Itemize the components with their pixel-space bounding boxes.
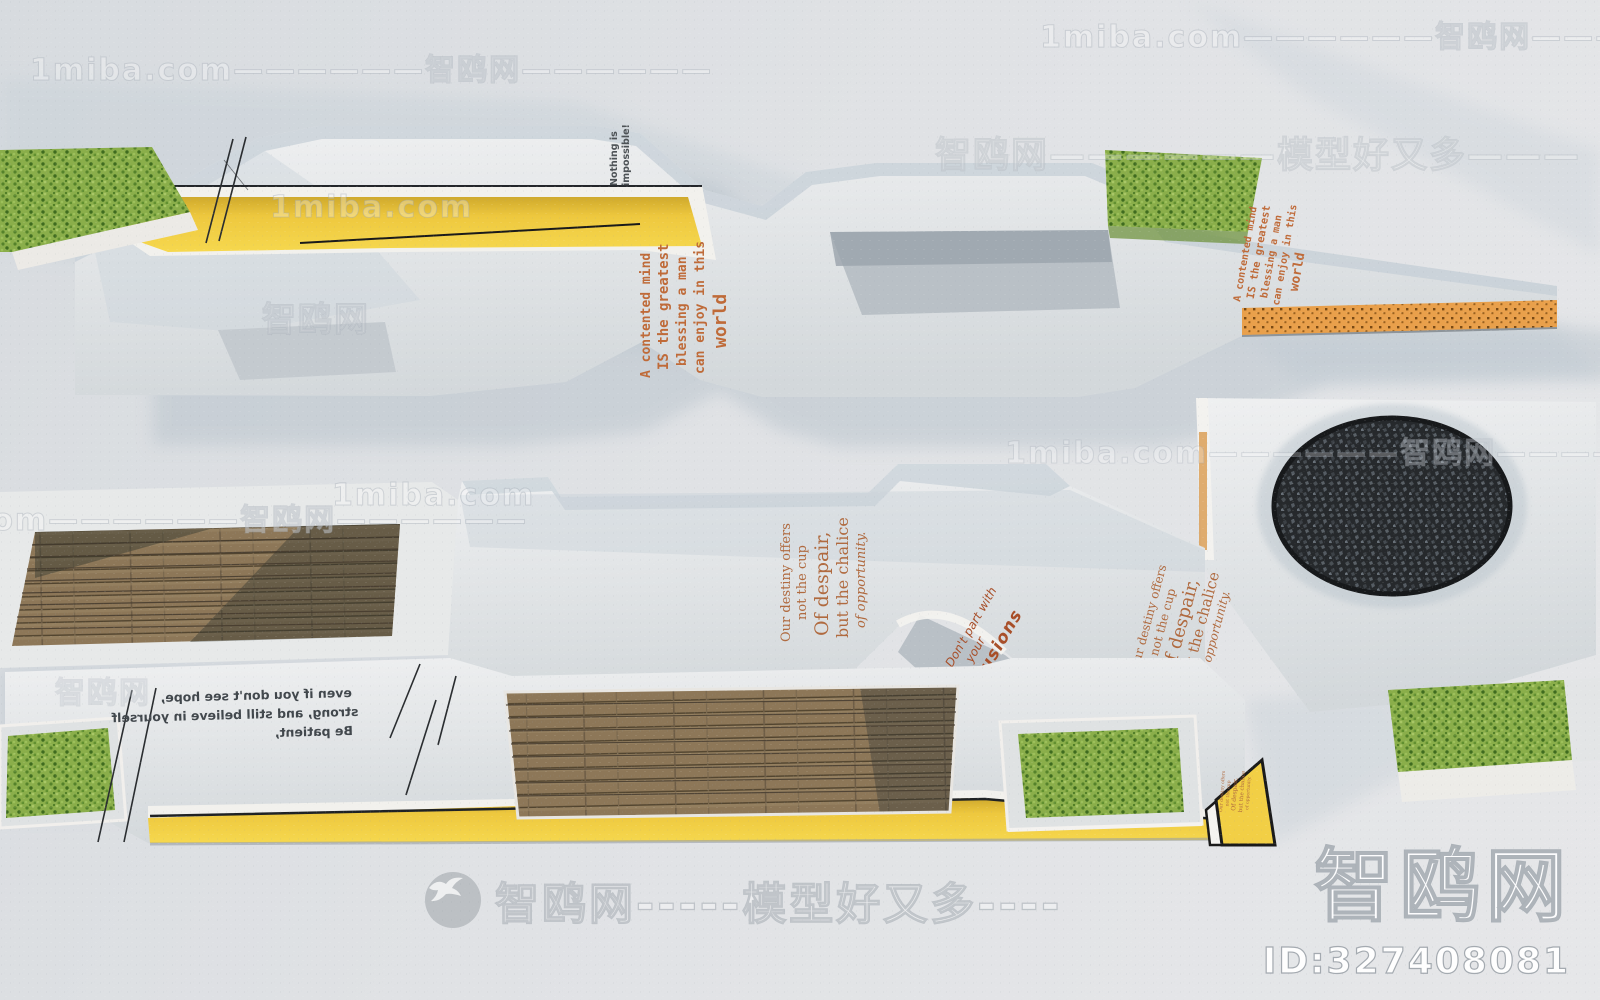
- watermark-center-text: 智鸥网-----模型好又多----: [495, 868, 1062, 932]
- watermark-row-middle: 1miba.com——————智鸥网——————: [0, 495, 528, 539]
- watermark-row-top-left: 1miba.com——————智鸥网——————: [30, 45, 713, 89]
- watermark-site-on-yellow: 1miba.com: [270, 190, 473, 225]
- watermark-row-brand-tagline: 智鸥网——————模型好又多———: [935, 126, 1581, 178]
- watermark-center: 智鸥网-----模型好又多----: [425, 868, 1062, 932]
- seagull-icon: [425, 872, 481, 928]
- watermark-brand-lower-left: 智鸥网: [55, 668, 151, 712]
- watermark-brand-big: 智鸥网: [1314, 822, 1572, 938]
- model-id-label: ID:327408081: [1263, 941, 1570, 982]
- watermark-row-on-platform: 1miba.com——————智鸥网——————: [1005, 428, 1600, 472]
- render-viewport: A contented mind IS the greatest blessin…: [0, 0, 1600, 1000]
- watermark-row-top-right: 1miba.com——————智鸥网——————: [1040, 12, 1600, 56]
- watermark-brand-mid-left: 智鸥网: [262, 292, 370, 341]
